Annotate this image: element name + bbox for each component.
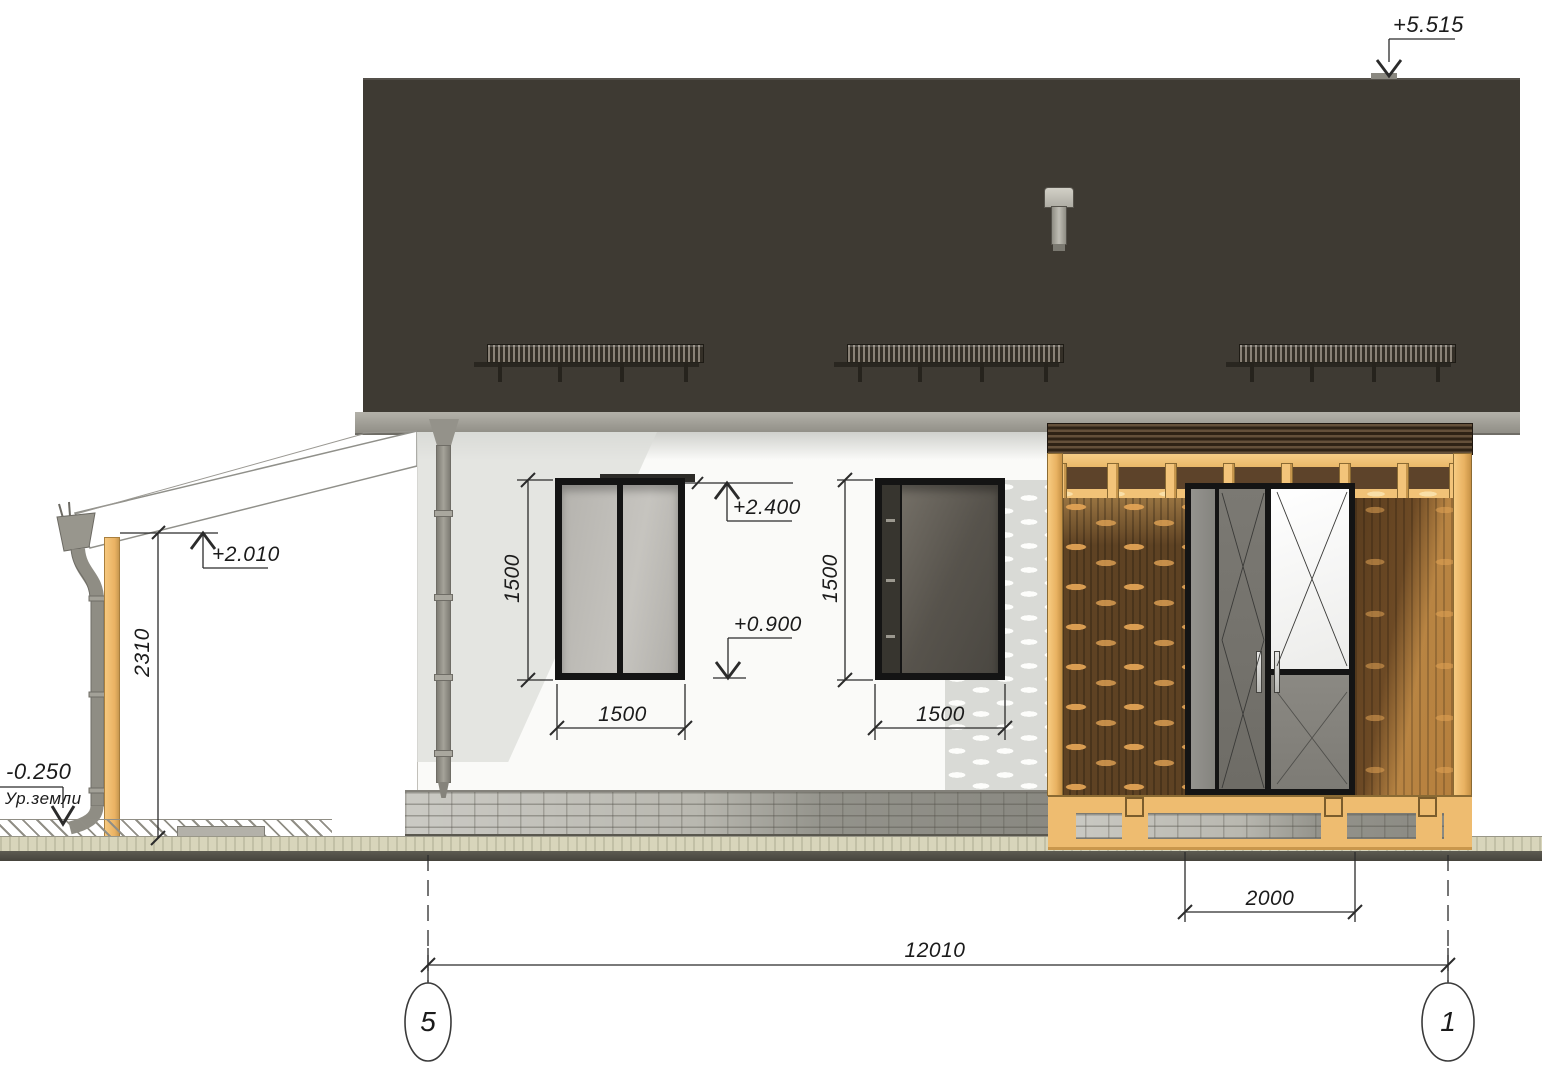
grid-bubble-1: 1 xyxy=(1426,1004,1470,1040)
grid-bubble-5: 5 xyxy=(406,1004,450,1040)
dimension-lines xyxy=(0,39,1455,984)
dim-porch-height: 2310 xyxy=(131,590,155,715)
level-head: +2.400 xyxy=(733,496,801,520)
ground-level-label: Ур.земли xyxy=(5,789,82,809)
level-porch: +2.010 xyxy=(212,543,280,567)
dim-window1-height: 1500 xyxy=(501,511,525,646)
dim-door-width: 2000 xyxy=(1222,887,1318,911)
level-sill: +0.900 xyxy=(734,613,802,637)
dim-window2-height: 1500 xyxy=(819,511,843,646)
door-opening-symbols xyxy=(1222,492,1347,788)
elevation-drawing: +5.515 +2.400 +0.900 +2.010 -0.250 Ур.зе… xyxy=(0,0,1560,1080)
grid-bubbles xyxy=(405,983,1474,1061)
dim-total-width: 12010 xyxy=(880,939,990,963)
level-ground: -0.250 xyxy=(6,759,71,785)
level-ridge: +5.515 xyxy=(1393,12,1464,38)
dim-window2-width: 1500 xyxy=(893,703,988,727)
dim-window1-width: 1500 xyxy=(575,703,670,727)
annotation-lines xyxy=(0,0,1560,1080)
